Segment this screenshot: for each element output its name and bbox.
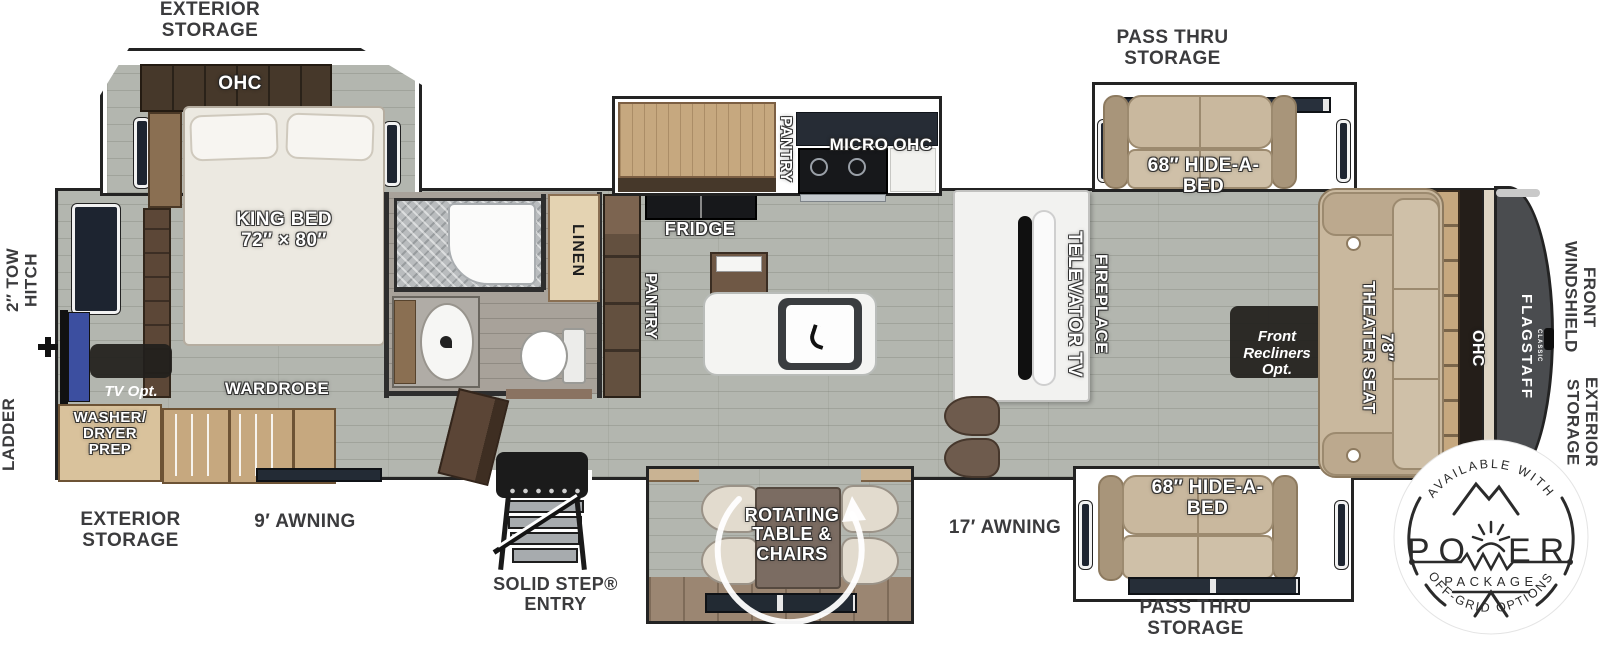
bathroom-wall [541,194,546,290]
tv-slot [1018,216,1032,380]
tv-panel [60,310,68,405]
tv-screen [68,312,90,402]
burner [848,158,866,176]
cupholder [1346,236,1361,251]
window [384,122,400,186]
bathroom-threshold [506,389,592,399]
hide-a-bed-bottom-label: 68″ HIDE-A- BED [1130,478,1285,519]
washer-dryer-label: WASHER/ DRYER PREP [60,410,160,459]
ladder-label: LADDER [0,383,24,485]
king-bed-label: KING BED 72″ × 80″ [198,210,370,251]
pantry-slide-label: PANTRY [768,104,794,194]
theater-seat-label: 78″ THEATER SEAT [1350,252,1396,442]
window [1079,501,1092,569]
fireplace-label: FIREPLACE [1086,234,1110,374]
window [1335,501,1348,569]
cupholder [1346,448,1361,463]
front-recliners-text: Front Recliners Opt. [1243,328,1311,379]
badge-power-right: ER [1508,532,1573,570]
badge-package: PACKAGE [1444,574,1537,589]
tv-opt-text: TV Opt. [104,383,157,400]
cap-trim [1496,189,1540,197]
shower-pan [448,203,536,285]
pass-thru-bottom-label: PASS THRU STORAGE [1118,598,1273,640]
pillow [285,112,375,161]
power-package-badge: AVAILABLE WITH OFF-GRID OPTIONS PO ER PA… [1392,438,1590,636]
brand-series: CLASSIC [1532,318,1542,374]
burner [810,158,828,176]
window-band [1128,577,1300,595]
kitchen-counter-edge [618,178,776,192]
hanging-clothes [170,414,222,476]
bathroom-wall [394,287,544,292]
floorplan: FLAGSTAFF CLASSIC OHC KING BED 72″ × 80″… [0,0,1600,655]
awning-rear-label: 9′ AWNING [240,512,370,533]
exterior-storage-top-label: EXTERIOR STORAGE [135,0,285,42]
front-ohc-label: OHC [1462,316,1486,380]
kitchen-counter [618,102,776,178]
kitchen-counter-right [890,148,936,192]
island-drawer [716,256,762,272]
window [72,204,120,314]
awning-main-label: 17′ AWNING [935,518,1075,539]
bedroom-ohc-label: OHC [205,74,275,95]
sofa-arm [1098,475,1124,581]
step-platform-dots [504,484,580,494]
window [1337,120,1350,182]
pass-thru-top-label: PASS THRU STORAGE [1095,28,1250,70]
exterior-storage-bottom-label: EXTERIOR STORAGE [58,510,203,552]
pillow [189,112,279,161]
chair [944,438,1000,478]
brand-name: FLAGSTAFF [1512,272,1534,422]
tv-door [1032,210,1056,386]
step-rail [498,496,511,570]
tow-hitch-label: 2″ TOW HITCH [4,210,50,350]
stove-rail [800,194,886,202]
linen-label: LINEN [560,202,586,298]
hanging-clothes [234,414,286,476]
wardrobe-label: WARDROBE [202,380,352,398]
sofa-seat [1122,535,1274,579]
hide-a-bed-top-label: 68″ HIDE-A- BED [1126,156,1281,197]
front-recliners-label: Front Recliners Opt. [1230,306,1324,378]
step-tread [512,548,578,563]
badge-power-left: PO [1407,532,1474,570]
fridge-label: FRIDGE [650,220,750,239]
solid-step-entry-label: SOLID STEP® ENTRY [478,575,633,615]
fridge [645,192,757,220]
faucet [440,336,452,348]
pantry-label: PANTRY [633,256,659,356]
toilet-bowl [520,330,568,382]
dinette-label: ROTATING TABLE & CHAIRS [712,506,872,564]
televator-tv-label: TELEVATOR TV [1056,212,1084,396]
vanity-shelf [394,300,416,384]
theater-seat-back [1392,198,1440,470]
sofa-back [1127,95,1273,149]
nightstand [148,112,182,208]
slide-trim [649,469,699,482]
chair [944,396,1000,436]
bathroom-wall [384,192,389,398]
window [256,468,382,482]
micro-ohc-label: MICRO OHC [806,136,956,154]
tv-opt-label: TV Opt. [90,344,172,378]
